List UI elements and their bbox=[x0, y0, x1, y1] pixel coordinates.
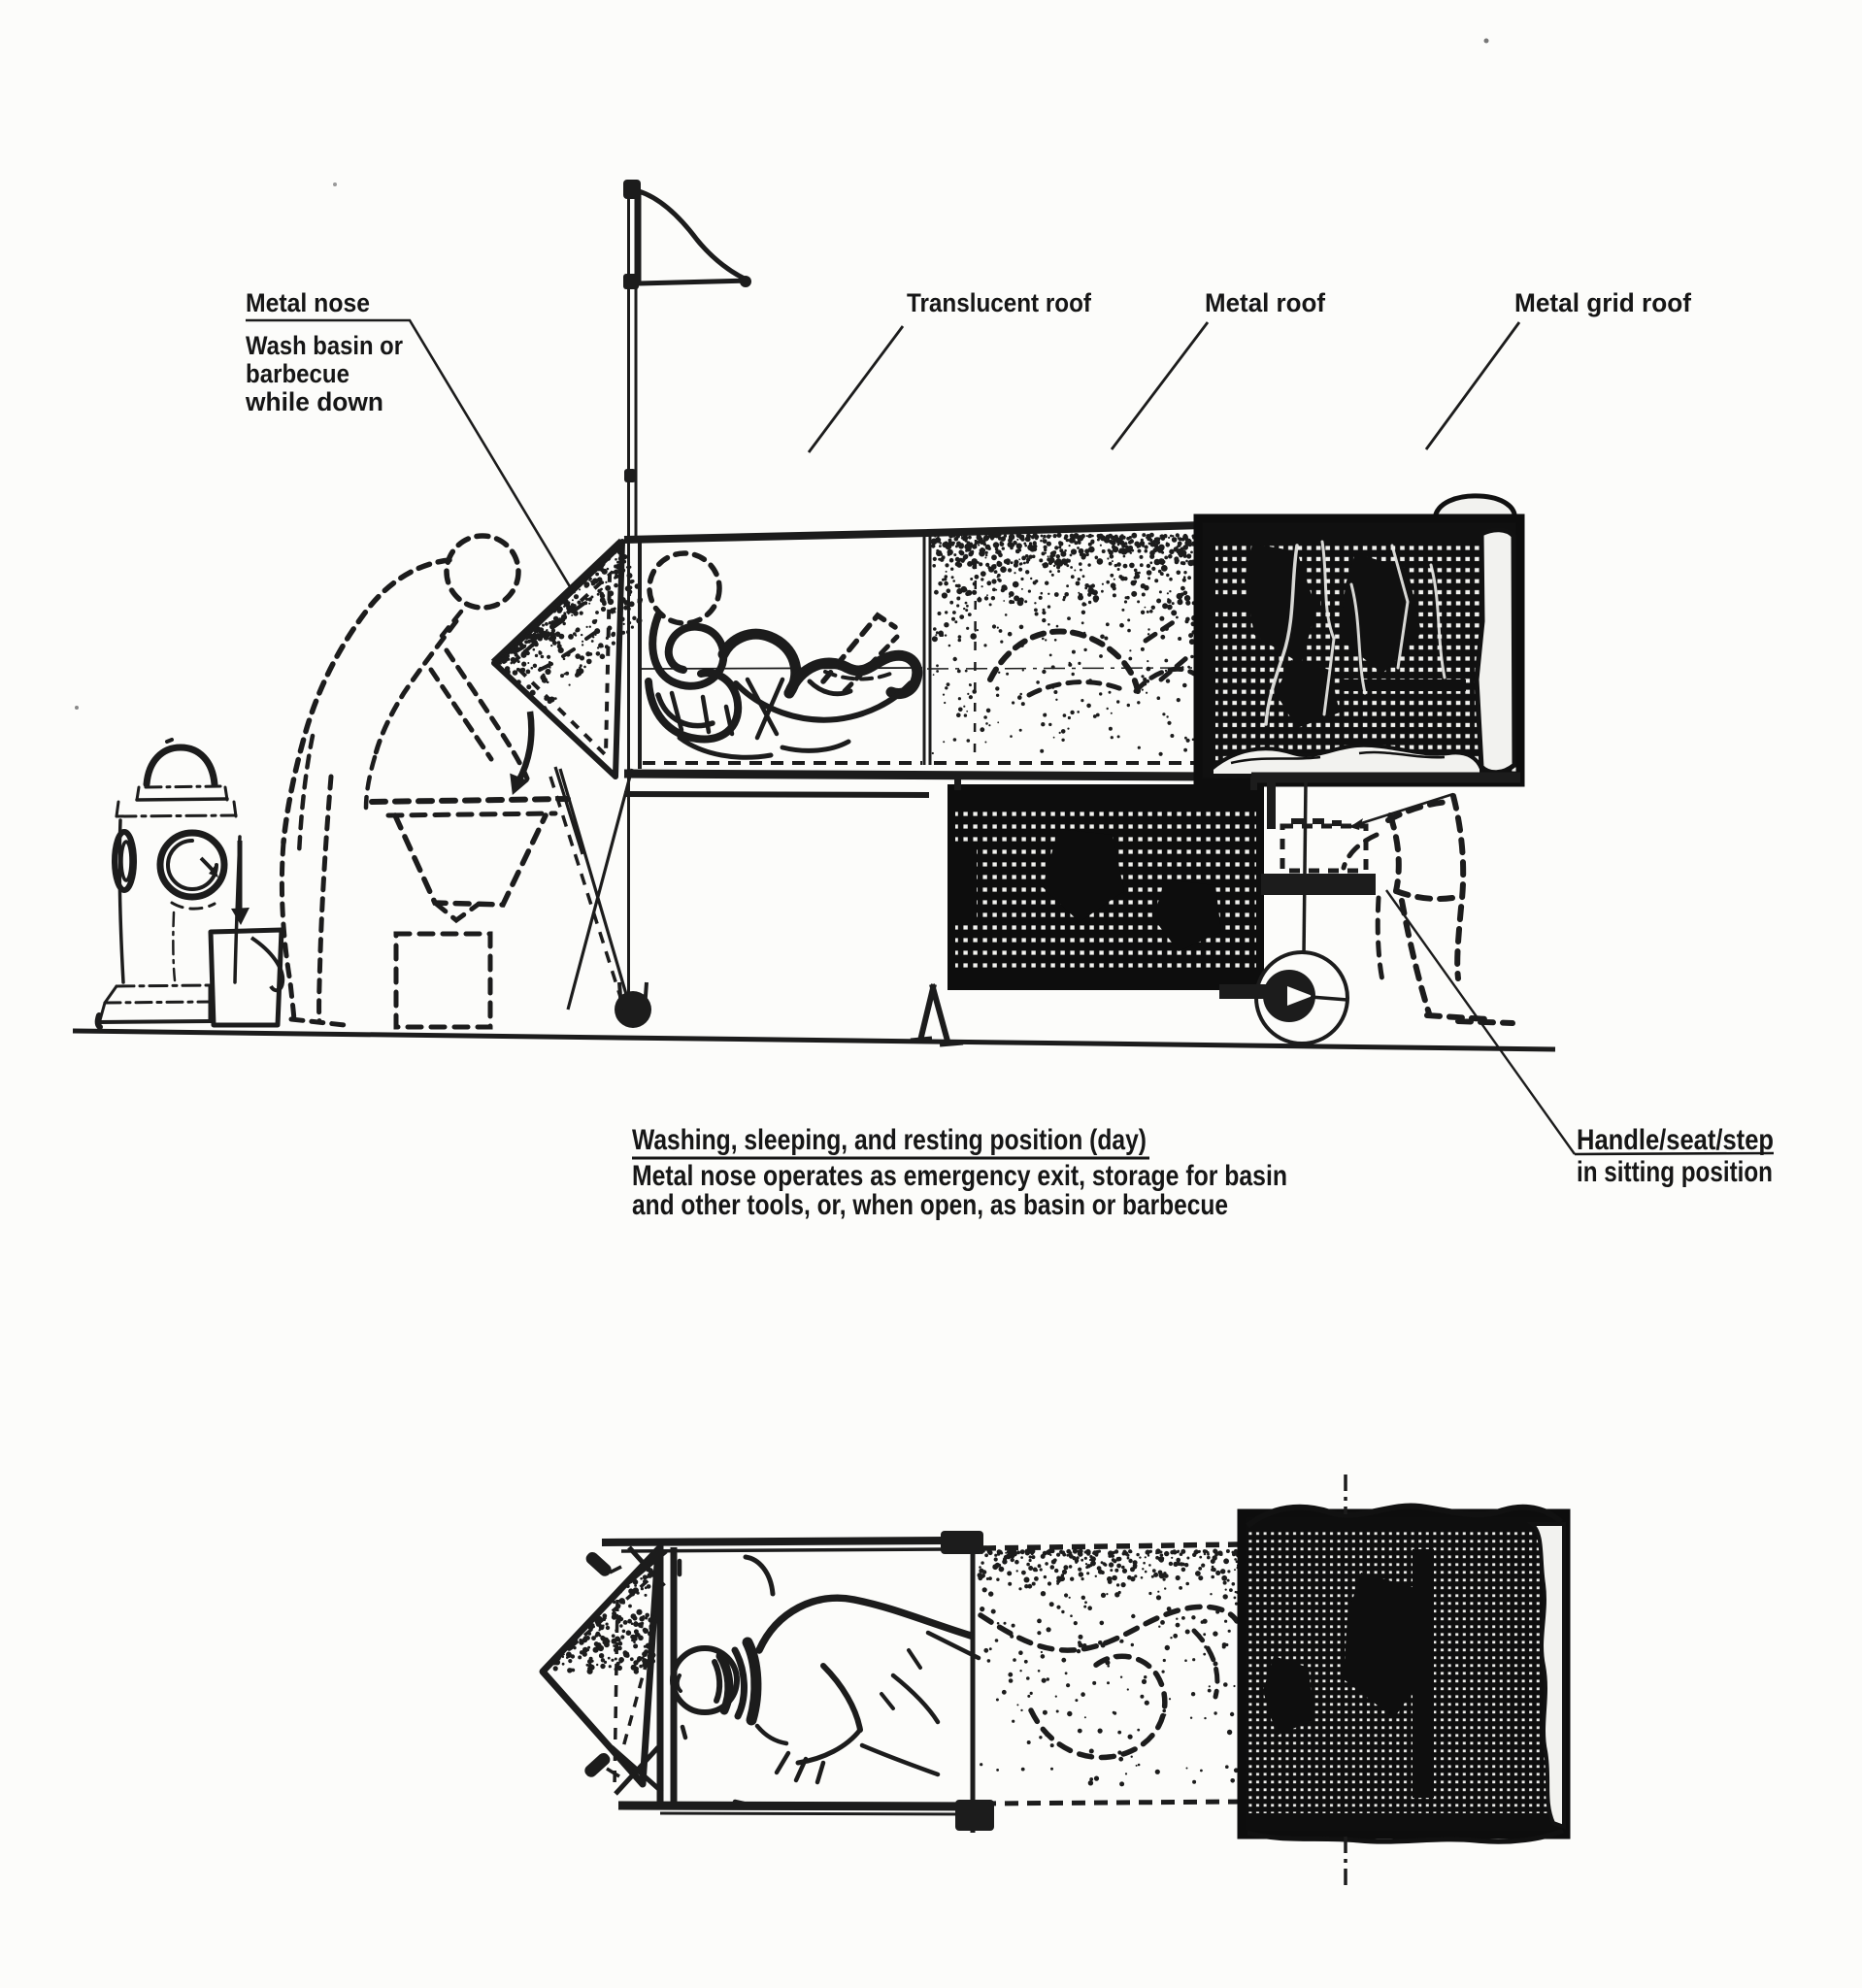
svg-text:Wash basin or: Wash basin or bbox=[246, 331, 403, 360]
svg-text:barbecue: barbecue bbox=[246, 359, 349, 388]
svg-text:and other tools, or, when open: and other tools, or, when open, as basin… bbox=[632, 1189, 1228, 1221]
svg-text:Washing, sleeping, and resting: Washing, sleeping, and resting position … bbox=[632, 1124, 1147, 1156]
svg-text:Metal roof: Metal roof bbox=[1205, 288, 1326, 317]
svg-text:while down: while down bbox=[245, 387, 383, 416]
svg-text:Handle/seat/step: Handle/seat/step bbox=[1577, 1124, 1774, 1156]
svg-text:Metal grid roof: Metal grid roof bbox=[1514, 288, 1692, 317]
svg-text:Metal nose: Metal nose bbox=[246, 288, 370, 317]
svg-text:Metal nose operates as emergen: Metal nose operates as emergency exit, s… bbox=[632, 1160, 1287, 1192]
svg-text:in sitting position: in sitting position bbox=[1577, 1156, 1773, 1188]
svg-text:Translucent roof: Translucent roof bbox=[907, 288, 1092, 317]
